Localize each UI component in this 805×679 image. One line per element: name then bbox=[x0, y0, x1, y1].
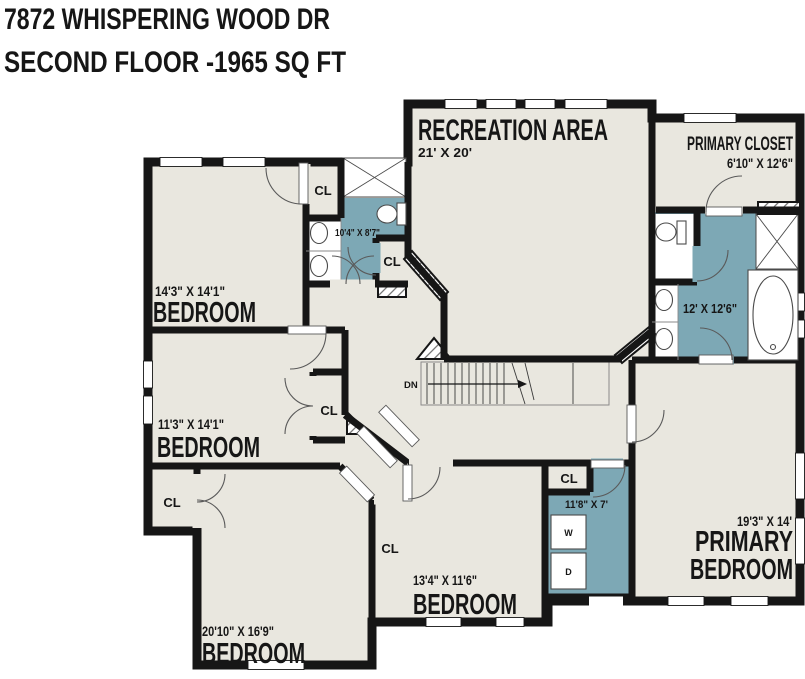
window bbox=[668, 597, 704, 606]
floorplan-page: 7872 WHISPERING WOOD DR SECOND FLOOR -19… bbox=[0, 0, 805, 679]
stairs-down-label: DN bbox=[404, 380, 418, 391]
closet-label: CL bbox=[381, 541, 398, 556]
room-label-bedroom4: BEDROOM bbox=[413, 589, 517, 621]
closet-label: CL bbox=[383, 254, 400, 269]
room-dims-bedroom3: 20'10" X 16'9" bbox=[202, 623, 274, 639]
toilet-bowl bbox=[656, 223, 676, 241]
room-label-recreation: RECREATION AREA bbox=[418, 114, 608, 147]
room-dims-hall-bath: 10'4" X 8'7" bbox=[335, 227, 380, 239]
room-dims-recreation: 21' X 20' bbox=[418, 145, 472, 160]
window bbox=[160, 158, 202, 167]
room-dims-primary-closet: 6'10" X 12'6" bbox=[727, 155, 793, 171]
closet-label: CL bbox=[320, 403, 337, 418]
hatch-chase bbox=[378, 286, 406, 297]
window bbox=[565, 100, 607, 109]
bathtub-basin bbox=[753, 276, 793, 354]
toilet-bowl bbox=[377, 205, 397, 223]
sink bbox=[311, 223, 328, 244]
titles: 7872 WHISPERING WOOD DR SECOND FLOOR -19… bbox=[4, 3, 346, 79]
window bbox=[144, 361, 153, 388]
window bbox=[486, 100, 516, 109]
closet-label: CL bbox=[560, 471, 577, 486]
window bbox=[223, 158, 265, 167]
room-label-primary-bedroom-line2: BEDROOM bbox=[690, 554, 793, 586]
room-dims-laundry: 11'8" X 7' bbox=[565, 499, 608, 511]
room-label-bedroom3: BEDROOM bbox=[202, 638, 305, 670]
room-label-bedroom1: BEDROOM bbox=[153, 297, 256, 329]
sink bbox=[656, 290, 673, 311]
room-label-primary-closet: PRIMARY CLOSET bbox=[687, 134, 793, 155]
toilet-tank bbox=[677, 221, 686, 244]
water-closet-zone bbox=[652, 214, 697, 282]
sink bbox=[656, 329, 673, 350]
dryer-label: D bbox=[565, 567, 572, 577]
floorplan-svg: 7872 WHISPERING WOOD DR SECOND FLOOR -19… bbox=[0, 0, 805, 679]
window bbox=[144, 396, 153, 424]
washer-label: W bbox=[564, 528, 573, 538]
page-title-line2: SECOND FLOOR -1965 SQ FT bbox=[4, 46, 346, 79]
toilet-tank bbox=[397, 203, 406, 225]
closet-label: CL bbox=[163, 495, 180, 510]
sink bbox=[311, 256, 328, 277]
room-label-bedroom2: BEDROOM bbox=[157, 432, 260, 464]
bathtub-drain bbox=[771, 345, 776, 350]
room-dims-bedroom2: 11'3" X 14'1" bbox=[158, 416, 224, 432]
window bbox=[525, 100, 555, 109]
window bbox=[796, 518, 805, 564]
window bbox=[445, 100, 477, 109]
closet-label: CL bbox=[314, 183, 331, 198]
window bbox=[731, 597, 768, 606]
page-title-line1: 7872 WHISPERING WOOD DR bbox=[4, 3, 330, 36]
room-dims-bedroom4: 13'4" X 11'6" bbox=[413, 572, 477, 588]
window bbox=[684, 114, 736, 123]
room-dims-primary-bath: 12' X 12'6" bbox=[683, 301, 737, 316]
window bbox=[796, 453, 805, 499]
